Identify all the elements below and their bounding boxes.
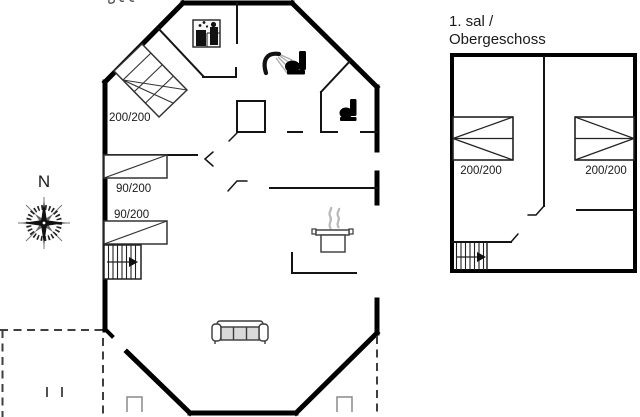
floor-plan-drawing: 200/200 90/200 90/200 [0, 0, 640, 417]
single-bed-top [104, 155, 167, 178]
kitchen-counter-wall [292, 253, 356, 273]
floor-plan-page: 200/200 90/200 90/200 [0, 0, 640, 417]
clipped-text-fragment [109, 0, 134, 3]
upper-floor-title-line2: Obergeschoss [449, 31, 546, 48]
wc-toilet-icon [340, 99, 357, 121]
upper-bed-left [453, 117, 513, 160]
door-symbols [205, 133, 247, 191]
shower-cabin-room [237, 101, 265, 132]
compass-rose: N [18, 172, 70, 249]
bed-size-label: 200/200 [585, 165, 627, 177]
stairs-up-icon [456, 242, 487, 270]
door-symbol-bathroom [229, 133, 237, 141]
bed-size-label: 200/200 [460, 165, 502, 177]
compass-rose-icon [18, 197, 70, 249]
bed-size-label: 90/200 [114, 209, 149, 221]
upper-floor-plan: 1. sal / Obergeschoss 200/200 [449, 13, 635, 271]
compass-north-label: N [38, 172, 50, 191]
upper-door-symbols [511, 206, 544, 242]
washing-machine-icon [193, 20, 220, 47]
stairs-up-icon [104, 245, 141, 279]
toilet-icon [285, 51, 306, 75]
terrace-tick-marks [47, 387, 62, 397]
door-symbol-bedroom [205, 152, 213, 166]
sofa-icon [212, 321, 268, 344]
upper-bed-right [575, 117, 634, 160]
bed-size-label: 200/200 [109, 112, 151, 124]
double-bed [114, 44, 187, 117]
upper-floor-title-line1: 1. sal / [449, 13, 494, 30]
single-bed-bottom [104, 221, 167, 244]
door-symbol-livingroom [228, 181, 247, 191]
terrace-dashed-outline [0, 330, 377, 417]
stove-pot-icon [312, 207, 353, 252]
terrace-posts [127, 397, 352, 412]
bed-size-label: 90/200 [116, 183, 151, 195]
